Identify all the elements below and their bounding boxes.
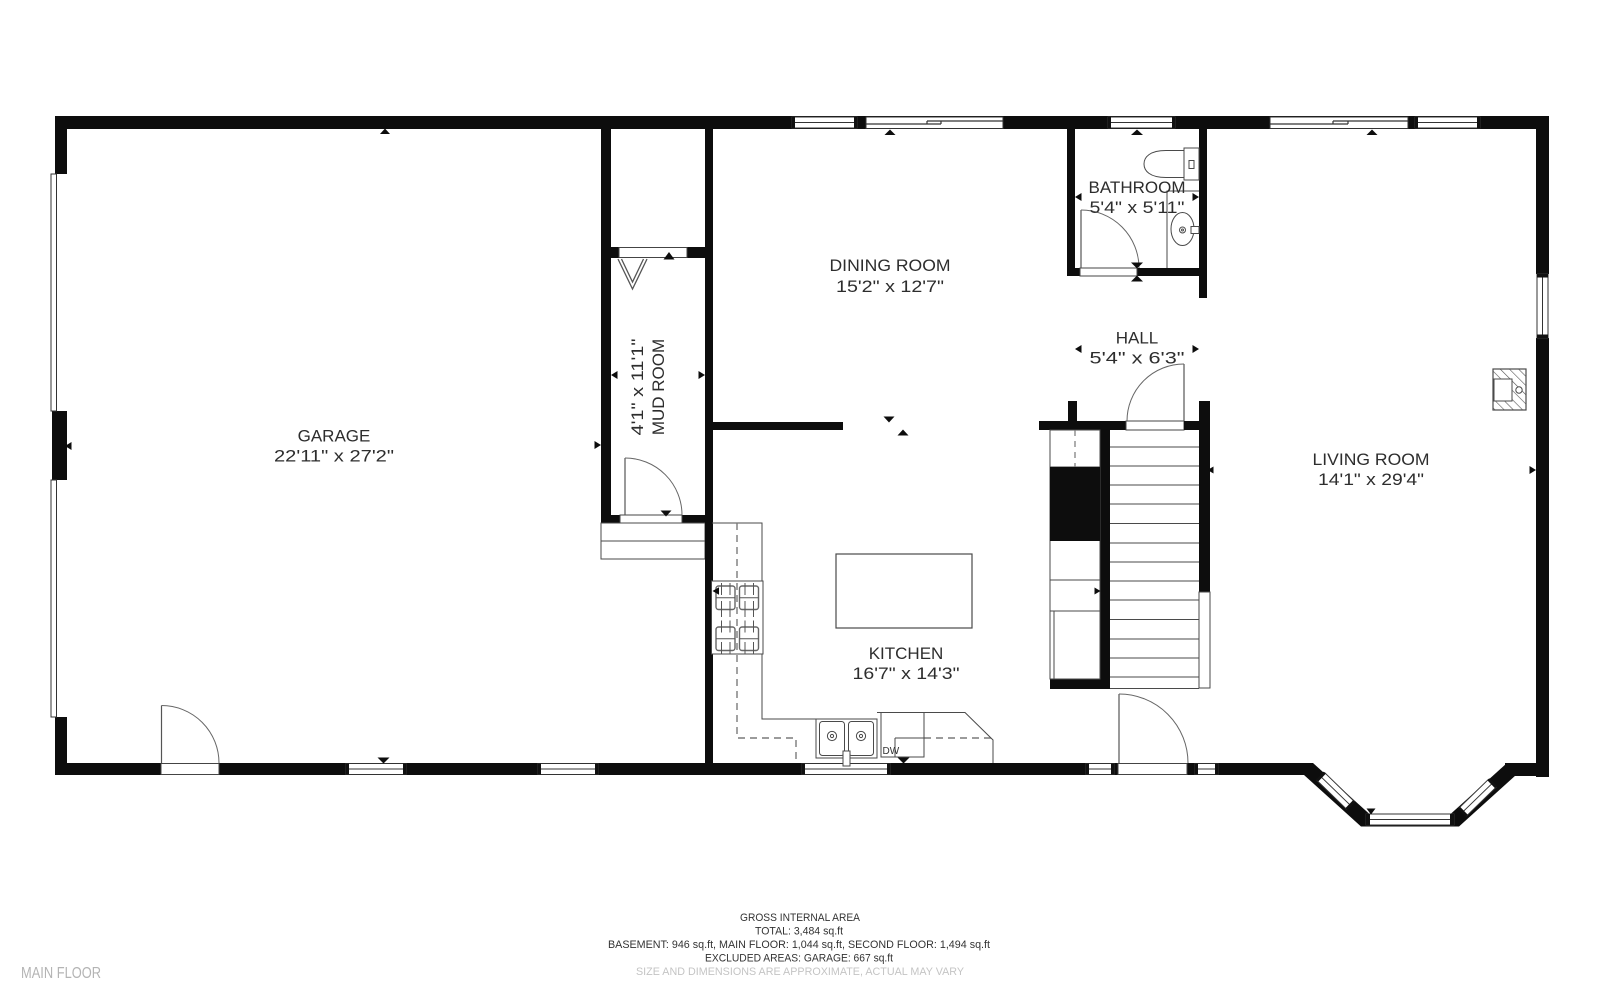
svg-text:DW: DW	[883, 746, 900, 757]
svg-text:MAIN FLOOR: MAIN FLOOR	[21, 965, 101, 982]
svg-text:BASEMENT: 946 sq.ft, MAIN FLOO: BASEMENT: 946 sq.ft, MAIN FLOOR: 1,044 s…	[608, 939, 990, 951]
svg-text:GARAGE: GARAGE	[298, 427, 371, 446]
svg-text:4'1" x 11'1": 4'1" x 11'1"	[628, 339, 647, 436]
svg-text:SIZE AND DIMENSIONS ARE APPROX: SIZE AND DIMENSIONS ARE APPROXIMATE, ACT…	[636, 966, 965, 978]
svg-text:5'4" x 6'3": 5'4" x 6'3"	[1090, 349, 1185, 368]
svg-text:KITCHEN: KITCHEN	[869, 644, 944, 663]
svg-text:LIVING ROOM: LIVING ROOM	[1313, 450, 1430, 469]
svg-text:GROSS INTERNAL AREA: GROSS INTERNAL AREA	[740, 912, 861, 924]
svg-text:HALL: HALL	[1116, 329, 1159, 348]
svg-text:TOTAL: 3,484 sq.ft: TOTAL: 3,484 sq.ft	[755, 926, 843, 938]
svg-text:14'1" x 29'4": 14'1" x 29'4"	[1318, 470, 1424, 489]
svg-text:DINING ROOM: DINING ROOM	[830, 256, 951, 275]
svg-text:16'7" x 14'3": 16'7" x 14'3"	[853, 664, 960, 683]
svg-text:15'2" x 12'7": 15'2" x 12'7"	[836, 277, 944, 296]
svg-text:5'4" x 5'11": 5'4" x 5'11"	[1090, 198, 1185, 217]
svg-text:BATHROOM: BATHROOM	[1089, 178, 1186, 197]
svg-text:EXCLUDED AREAS: GARAGE: 667 sq: EXCLUDED AREAS: GARAGE: 667 sq.ft	[705, 953, 893, 965]
svg-text:22'11" x 27'2": 22'11" x 27'2"	[274, 447, 394, 466]
svg-text:MUD ROOM: MUD ROOM	[649, 339, 668, 435]
